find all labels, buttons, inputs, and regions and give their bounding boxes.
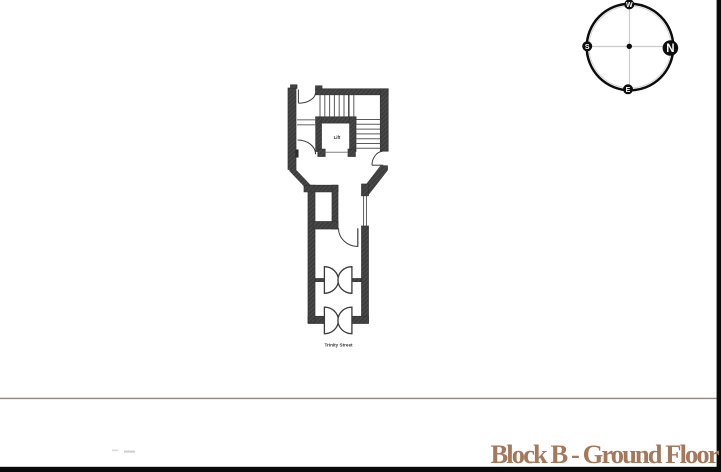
svg-text:Lift: Lift [334, 135, 341, 140]
svg-text:E: E [626, 87, 631, 94]
svg-text:W: W [626, 2, 633, 9]
svg-text:N: N [666, 43, 674, 55]
svg-text:Trinity Street: Trinity Street [324, 343, 353, 348]
svg-text:Block B - Ground Floor: Block B - Ground Floor [491, 439, 720, 469]
svg-text:S: S [585, 44, 590, 51]
